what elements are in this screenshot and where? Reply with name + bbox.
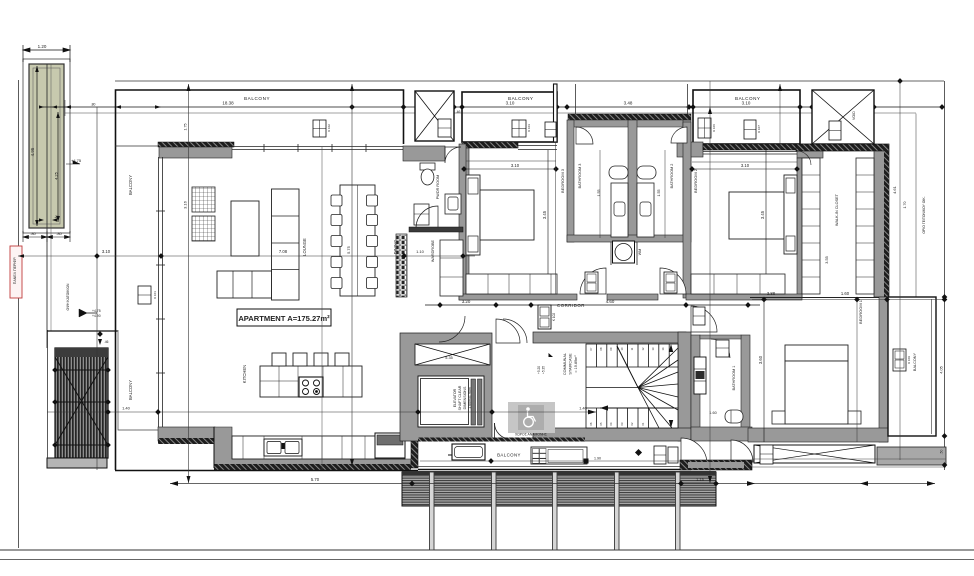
svg-text:3.45: 3.45 (542, 210, 547, 219)
svg-text:1.40: 1.40 (122, 406, 131, 411)
svg-text:18.38: 18.38 (222, 101, 234, 106)
svg-text:ΟΡΙΟ ΓΕΙΤΟΝΙΚΟΥ ΟΙΚ.: ΟΡΙΟ ΓΕΙΤΟΝΙΚΟΥ ΟΙΚ. (922, 196, 926, 233)
svg-text:+4.75: +4.75 (92, 309, 101, 313)
svg-text:1.20: 1.20 (38, 44, 47, 49)
svg-text:K 102: K 102 (327, 124, 331, 132)
svg-text:3.20: 3.20 (462, 299, 471, 304)
svg-text:.80: .80 (91, 103, 96, 107)
svg-text:WARDROBE: WARDROBE (431, 239, 435, 262)
svg-text:K 107: K 107 (757, 125, 761, 133)
svg-text:K 103: K 103 (527, 124, 531, 132)
svg-text:ΧΩΡΟΣ ΑΝΑΜΟΝΗΣ: ΧΩΡΟΣ ΑΝΑΜΟΝΗΣ (515, 433, 547, 437)
svg-text:3.10: 3.10 (741, 163, 750, 168)
svg-text:3.10: 3.10 (742, 101, 751, 106)
svg-text:.46: .46 (456, 110, 461, 114)
svg-text:1.15: 1.15 (696, 477, 705, 482)
svg-text:= 19.89m²: = 19.89m² (574, 355, 578, 373)
svg-text:BALCONY: BALCONY (913, 352, 917, 371)
svg-text:SHAFT CLEAR: SHAFT CLEAR (458, 385, 462, 410)
svg-text:STAIRCASE: STAIRCASE (569, 353, 573, 375)
svg-text:K 101: K 101 (153, 291, 157, 299)
svg-text:3.45: 3.45 (760, 210, 765, 219)
svg-text:1.60: 1.60 (709, 411, 716, 415)
svg-text:BALCONY: BALCONY (244, 96, 270, 101)
svg-text:WALK-IN CLOSET: WALK-IN CLOSET (835, 193, 839, 226)
svg-text:.20: .20 (54, 215, 59, 219)
svg-text:3.10: 3.10 (511, 163, 520, 168)
svg-text:1.60: 1.60 (841, 291, 850, 296)
svg-text:4.61: 4.61 (892, 185, 897, 194)
svg-text:.80: .80 (30, 231, 36, 236)
svg-text:+4.75: +4.75 (71, 158, 82, 163)
svg-text:BALCONY: BALCONY (508, 96, 533, 101)
svg-text:4.25: 4.25 (54, 171, 59, 180)
svg-text:BATHROOM 1: BATHROOM 1 (732, 366, 736, 391)
svg-text:ΟΨΗ ΚΑΤΟΙΚΙΩΝ: ΟΨΗ ΚΑΤΟΙΚΙΩΝ (66, 283, 70, 310)
svg-text:K 106: K 106 (712, 124, 716, 132)
svg-text:+5.20: +5.20 (537, 366, 541, 374)
svg-text:.46: .46 (104, 340, 109, 344)
svg-text:1.40: 1.40 (579, 406, 588, 411)
svg-text:1.70: 1.70 (903, 202, 907, 209)
svg-text:.50: .50 (940, 450, 944, 455)
svg-text:COMMUNAL: COMMUNAL (563, 353, 567, 375)
svg-text:3.10: 3.10 (506, 101, 515, 106)
svg-text:1.55: 1.55 (657, 190, 661, 197)
svg-text:5.35: 5.35 (445, 356, 452, 360)
svg-text:1.90: 1.90 (594, 457, 601, 461)
svg-text:BEDROOM 1: BEDROOM 1 (858, 299, 863, 324)
svg-text:BALCONY: BALCONY (497, 453, 521, 458)
svg-text:LOUNGE: LOUNGE (302, 238, 307, 256)
svg-text:+4.90: +4.90 (92, 314, 101, 318)
svg-text:VOID: VOID (852, 111, 856, 120)
svg-text:7.08: 7.08 (279, 249, 288, 254)
svg-text:5.75: 5.75 (346, 245, 351, 254)
svg-text:3.10: 3.10 (102, 249, 111, 254)
svg-text:+5.35: +5.35 (542, 366, 546, 374)
svg-text:BATHROOM 3: BATHROOM 3 (578, 164, 582, 189)
svg-text:APARTMENT A=175.27m²: APARTMENT A=175.27m² (238, 314, 330, 323)
svg-text:BEDROOM 2: BEDROOM 2 (693, 168, 698, 193)
svg-text:4.95: 4.95 (30, 147, 35, 156)
svg-text:BATHROOM 2: BATHROOM 2 (670, 164, 674, 189)
svg-text:1.55: 1.55 (597, 190, 601, 197)
svg-text:3.16: 3.16 (183, 200, 188, 209)
svg-text:1.75: 1.75 (184, 124, 188, 131)
svg-text:3.88: 3.88 (767, 291, 776, 296)
svg-text:CORRIDOR: CORRIDOR (557, 303, 585, 308)
svg-text:BEDROOM 3: BEDROOM 3 (560, 168, 565, 193)
svg-text:4.05: 4.05 (940, 366, 944, 373)
svg-text:WM: WM (638, 249, 642, 255)
svg-text:K 109: K 109 (907, 356, 911, 364)
svg-text:3.48: 3.48 (624, 101, 633, 106)
svg-text:.80: .80 (56, 231, 62, 236)
svg-text:4.60: 4.60 (606, 299, 615, 304)
svg-text:1.10: 1.10 (416, 249, 425, 254)
svg-text:DIMENSIONS: DIMENSIONS (463, 386, 467, 409)
svg-text:1.60mx1.90m: 1.60mx1.90m (468, 387, 472, 409)
svg-text:BALCONY: BALCONY (735, 96, 760, 101)
svg-text:5.70: 5.70 (311, 477, 320, 482)
svg-text:BALCONY: BALCONY (128, 380, 133, 400)
svg-text:K 102: K 102 (552, 313, 556, 322)
svg-text:ELEVATOR: ELEVATOR (453, 388, 457, 407)
svg-text:KITCHEN: KITCHEN (242, 365, 247, 383)
svg-text:3.60: 3.60 (758, 355, 763, 364)
svg-text:3.55: 3.55 (825, 256, 829, 263)
svg-text:ΠΑΝΕΛ ΠΕΡΙΦΡ.: ΠΑΝΕΛ ΠΕΡΙΦΡ. (13, 257, 17, 284)
svg-text:BALCONY: BALCONY (128, 175, 133, 195)
svg-text:PWDR ROOM: PWDR ROOM (436, 175, 440, 199)
